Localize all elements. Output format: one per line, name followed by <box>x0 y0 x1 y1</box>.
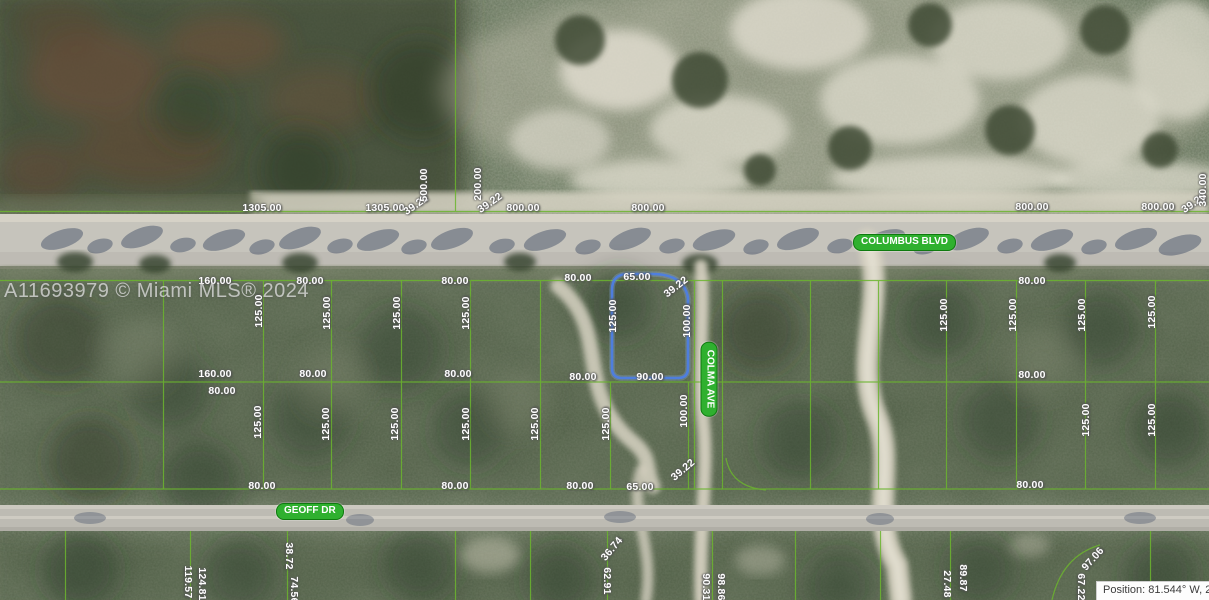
dimension-label: 125.00 <box>460 296 472 329</box>
dimension-label: 67.22 <box>1075 573 1087 600</box>
highlighted-parcel-right-dimension: 100.00 <box>681 304 693 337</box>
dimension-label: 800.00 <box>506 202 539 214</box>
highlighted-parcel-left-dimension: 125.00 <box>607 299 619 332</box>
dimension-label: 125.00 <box>460 407 472 440</box>
street-label-geoff-dr: GEOFF DR <box>276 503 344 520</box>
dimension-label: 340.00 <box>1197 173 1209 206</box>
dimension-label: 80.00 <box>1018 275 1045 287</box>
dimension-label: 62.91 <box>601 567 613 594</box>
mls-watermark: A11693979 © Miami MLS® 2024 <box>4 280 309 303</box>
street-label-columbus-blvd: COLUMBUS BLVD <box>853 234 956 251</box>
dimension-label: 125.00 <box>1007 298 1019 331</box>
dimension-label: 80.00 <box>441 275 468 287</box>
dimension-label: 80.00 <box>564 272 591 284</box>
dimension-label: 125.00 <box>391 296 403 329</box>
highlighted-parcel-top-dimension: 65.00 <box>623 271 650 283</box>
dimension-label: 119.57 <box>182 566 194 599</box>
aerial-map[interactable]: 1305.001305.0039.22500.00200.0039.22800.… <box>0 0 1209 600</box>
dimension-label: 800.00 <box>631 202 664 214</box>
street-label-colma-ave: COLMA AVE <box>701 342 718 417</box>
dimension-label: 125.00 <box>321 296 333 329</box>
dimension-label: 100.00 <box>678 394 690 427</box>
dimension-label: 125.00 <box>600 407 612 440</box>
dimension-label: 125.00 <box>1076 298 1088 331</box>
dimension-label: 80.00 <box>569 371 596 383</box>
dimension-label: 80.00 <box>444 368 471 380</box>
dimension-label: 160.00 <box>198 368 231 380</box>
dimension-label: 125.00 <box>529 407 541 440</box>
dimension-label: 80.00 <box>248 480 275 492</box>
dimension-label: 125.00 <box>1146 403 1158 436</box>
dimension-label: 90.31 <box>700 573 712 600</box>
dimension-label: 200.00 <box>472 167 484 200</box>
dimension-label: 74.56 <box>288 576 300 600</box>
dimension-label: 125.00 <box>252 405 264 438</box>
dimension-label: 125.00 <box>938 298 950 331</box>
dimension-label: 80.00 <box>208 385 235 397</box>
dimension-label: 800.00 <box>1015 201 1048 213</box>
dimension-label: 500.00 <box>418 168 430 201</box>
dimension-label: 80.00 <box>1018 369 1045 381</box>
dimension-label: 124.81 <box>196 567 208 600</box>
dimension-label: 38.72 <box>283 542 295 569</box>
dimension-label: 125.00 <box>1080 403 1092 436</box>
position-readout: Position: 81.544° W, 2 <box>1096 581 1209 600</box>
dimension-label: 98.86 <box>715 573 727 600</box>
dimension-label: 89.87 <box>957 564 969 591</box>
dimension-label: 80.00 <box>566 480 593 492</box>
dimension-label: 80.00 <box>1016 479 1043 491</box>
dimension-label: 80.00 <box>299 368 326 380</box>
dimension-label: 125.00 <box>1146 295 1158 328</box>
dimension-label: 1305.00 <box>365 202 404 214</box>
dimension-label: 125.00 <box>320 407 332 440</box>
dimension-label: 800.00 <box>1141 201 1174 213</box>
dimension-label: 27.48 <box>941 570 953 597</box>
highlighted-parcel-bottom-dimension: 90.00 <box>636 371 663 383</box>
dimension-label: 1305.00 <box>242 202 281 214</box>
dimension-label: 125.00 <box>389 407 401 440</box>
dimension-label: 80.00 <box>441 480 468 492</box>
dimension-label: 65.00 <box>626 481 653 493</box>
